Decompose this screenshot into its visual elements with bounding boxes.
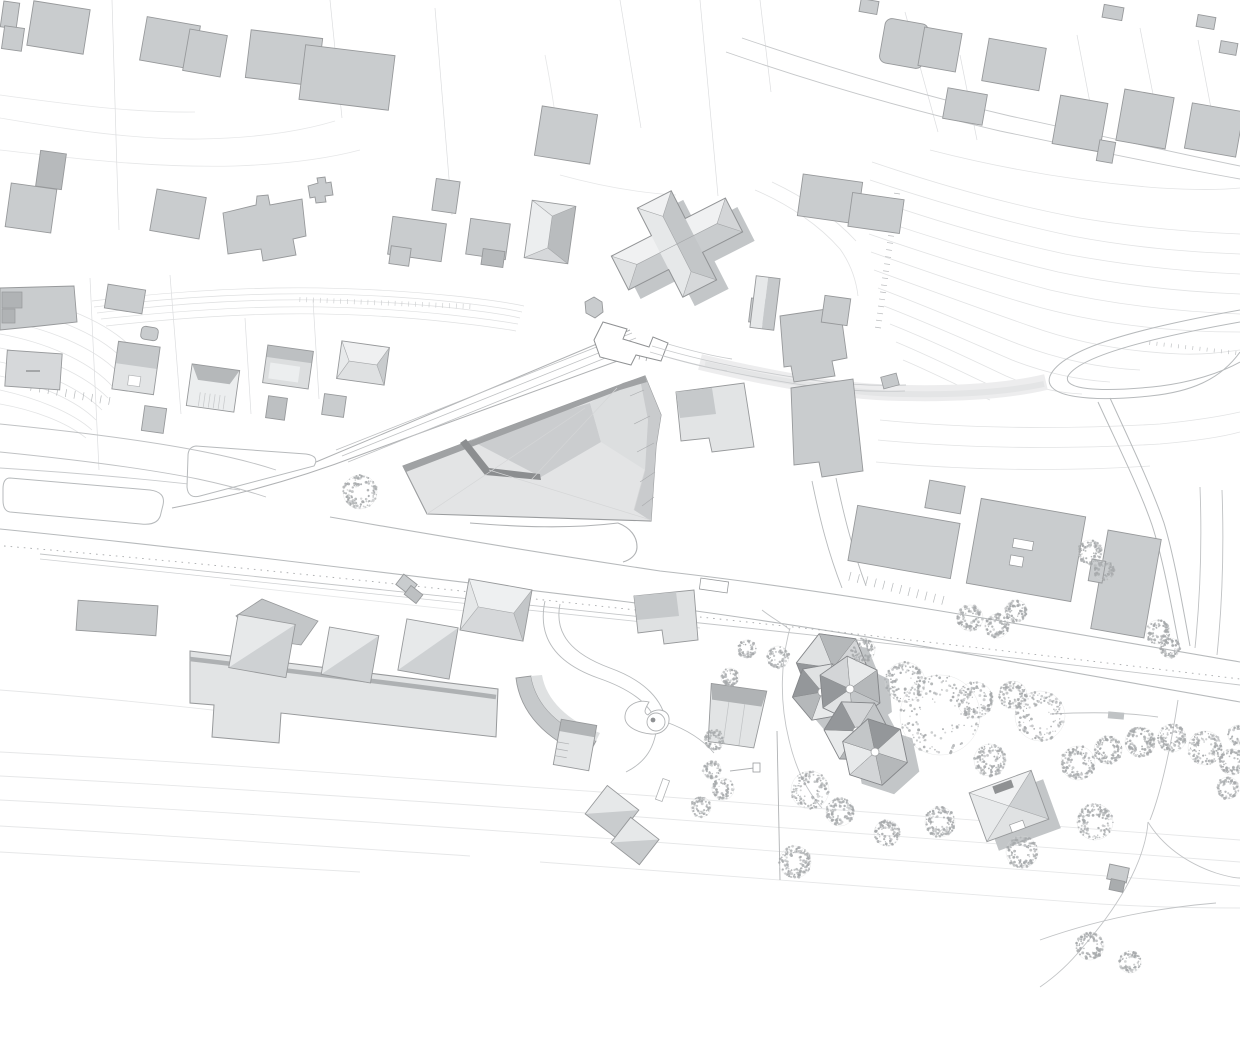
tree-foliage-dot [1150,742,1151,743]
tree-foliage-dot [867,658,868,659]
tree-foliage-dot [1009,610,1011,612]
tree-foliage-dot [804,806,805,807]
tree-foliage-dot [821,774,823,776]
tree-foliage-dot [724,783,726,785]
tree-foliage-dot [848,807,851,810]
tree-foliage-dot [874,836,876,838]
tree-foliage-dot [372,481,374,483]
tree-foliage-dot [1079,554,1081,556]
20 [886,250,892,251]
tree-foliage-dot [1052,713,1054,715]
tree-foliage-dot [358,506,360,508]
tree-foliage-dot [1146,752,1149,755]
tree-foliage-dot [1107,822,1109,824]
tree-foliage-dot [721,674,723,676]
tree-foliage-dot [847,804,850,807]
tree-foliage-dot [1017,614,1019,616]
tree-foliage-dot [1131,742,1134,745]
tree-foliage-dot [1174,651,1176,653]
tree-foliage-dot [1100,547,1102,549]
tree-foliage-dot [932,815,933,816]
tree-foliage-dot [1127,953,1130,956]
tree-foliage-dot [832,810,834,812]
tree [956,681,993,718]
tree-foliage-dot [705,765,708,768]
tree-foliage-dot [955,687,957,689]
tree-foliage-dot [974,629,976,631]
tree-foliage-dot [1034,737,1036,739]
tree-foliage-dot [1091,762,1092,763]
tree-foliage-dot [785,848,788,851]
building-footprint [966,498,1085,601]
tree-foliage-dot [929,814,930,815]
tree-foliage-dot [1082,820,1084,822]
tree-foliage-dot [1055,712,1057,714]
tree-foliage-dot [1093,938,1095,940]
tree-foliage-dot [1009,615,1010,616]
tree-foliage-dot [712,787,713,788]
tree-foliage-dot [1167,743,1168,744]
tree-foliage-dot [1018,725,1019,726]
tree-foliage-dot [709,763,712,766]
tree-foliage-dot [1089,767,1090,768]
tree-foliage-dot [798,777,800,779]
tree-foliage-dot [1105,755,1107,757]
tree-foliage-dot [964,629,965,630]
tree-foliage-dot [708,801,711,804]
tree-foliage-dot [1064,763,1065,764]
tree-foliage-dot [897,688,899,690]
tree-foliage-dot [1214,760,1216,762]
tree-foliage-dot [919,741,921,743]
tree-foliage-dot [958,704,960,706]
tree-foliage-dot [804,774,807,777]
tree-foliage-dot [1235,791,1237,793]
tree-foliage-dot [889,840,892,843]
tree-foliage-dot [1101,948,1104,951]
tree-foliage-dot [1021,866,1023,868]
tree-foliage-dot [894,680,896,682]
tree-foliage-dot [1048,696,1050,698]
tree-foliage-dot [701,802,704,805]
tree-foliage-dot [1130,752,1132,754]
tree-foliage-dot [1143,738,1146,741]
parcel-line [170,275,181,414]
tree-foliage-dot [704,738,707,741]
tree-foliage-dot [723,737,724,738]
10 [74,391,75,399]
tree-foliage-dot [964,687,966,689]
tree-foliage-dot [1171,750,1174,753]
tree-foliage-dot [1091,805,1093,807]
tree-foliage-dot [755,648,757,650]
tree-foliage-dot [993,636,996,639]
tree-foliage-dot [1093,757,1095,759]
tree-foliage-dot [1230,738,1232,740]
tree-foliage-dot [1127,741,1129,743]
tree-foliage-dot [924,682,925,683]
tree-foliage-dot [804,861,807,864]
tree-foliage-dot [731,788,734,791]
tree-foliage-dot [877,832,879,834]
tree-foliage-dot [1052,731,1053,732]
tree-foliage-dot [1044,734,1045,735]
tree-foliage-dot [724,673,726,675]
tree-foliage-dot [883,838,885,840]
tree-foliage-dot [1215,743,1218,746]
tree-foliage-dot [1026,860,1028,862]
tree-foliage-dot [367,505,368,506]
tree-foliage-dot [886,681,887,682]
building-footprint [1102,4,1124,20]
tree-foliage-dot [1119,965,1122,968]
tree-foliage-dot [832,809,833,810]
tree-foliage-dot [1020,706,1022,708]
tree-foliage-dot [928,819,930,821]
tree-foliage-dot [990,703,993,706]
tree-foliage-dot [855,649,856,650]
tree-foliage-dot [1124,952,1127,955]
tree-foliage-dot [1128,951,1129,952]
tree-foliage-dot [971,687,974,690]
tree-foliage-dot [698,797,700,799]
tree-foliage-dot [931,813,932,814]
hipped-house [337,341,390,385]
tree-foliage-dot [784,854,786,856]
tree-foliage-dot [1099,952,1101,954]
tree-foliage-dot [1149,747,1151,749]
tree-foliage-dot [875,827,876,828]
20 [877,313,883,314]
tree-foliage-dot [729,679,731,681]
tree-foliage-dot [911,710,913,712]
tree-foliage-dot [887,826,890,829]
tree-foliage-dot [1005,692,1008,695]
12 [908,587,910,596]
tree-foliage-dot [979,625,981,627]
tree-foliage-dot [1220,743,1221,744]
tree-foliage-dot [953,744,954,745]
tree-foliage-dot [1029,859,1032,862]
tree-foliage-dot [1002,700,1004,702]
building-footprint [848,193,904,234]
tree-foliage-dot [900,698,901,699]
tree-foliage-dot [802,799,804,801]
ramp [655,778,669,801]
tree-foliage-dot [1194,733,1197,736]
tree-foliage-dot [1092,808,1093,809]
tree-foliage-dot [791,796,793,798]
tree-foliage-dot [912,665,914,667]
tree-foliage-dot [809,855,811,857]
tree-foliage-dot [1080,941,1082,943]
tree-foliage-dot [716,772,717,773]
tree-foliage-dot [692,810,694,812]
tree-foliage-dot [999,747,1002,750]
tree-foliage-dot [970,628,972,630]
tree-foliage-dot [998,771,1001,774]
tree-foliage-dot [1068,775,1071,778]
tree-foliage-dot [783,664,785,666]
tree-foliage-dot [701,800,702,801]
tree-foliage-dot [891,668,894,671]
tree-foliage-dot [1072,748,1074,750]
tree-foliage-dot [360,475,362,477]
tree-foliage-dot [1085,752,1088,755]
tree-foliage-dot [1112,738,1115,741]
tree-foliage-dot [920,676,923,679]
tree-foliage-dot [1228,767,1230,769]
tree-foliage-dot [970,621,973,624]
tree-foliage-dot [891,686,892,687]
tree-foliage-dot [1205,754,1207,756]
building-footprint [918,27,962,72]
tree-foliage-dot [925,692,928,695]
tree-foliage-dot [918,677,920,679]
tree-foliage-dot [1109,564,1112,567]
tree-foliage-dot [1067,759,1068,760]
tree-foliage-dot [950,685,952,687]
tree [766,646,790,669]
tree-foliage-dot [1008,707,1010,709]
tree-foliage-dot [913,743,915,745]
tree-foliage-dot [827,791,830,794]
tree-foliage-dot [803,782,806,785]
tree-foliage-dot [1223,769,1225,771]
tree-foliage-dot [1015,619,1017,621]
tree-foliage-dot [1018,862,1020,864]
tree-foliage-dot [925,823,927,825]
tree-foliage-dot [898,828,900,830]
tree-foliage-dot [1086,952,1089,955]
tree-foliage-dot [812,770,815,773]
tree-foliage-dot [954,705,955,706]
tree-foliage-dot [343,490,345,492]
tree-foliage-dot [805,778,808,781]
tree-foliage-dot [1083,557,1084,558]
tree-foliage-dot [1188,749,1189,750]
tree-foliage-dot [987,632,990,635]
tree-foliage-dot [1059,718,1060,719]
tree-foliage-dot [979,748,980,749]
tree-foliage-dot [1178,737,1181,740]
tree-foliage-dot [1092,836,1094,838]
tree-foliage-dot [1051,704,1053,706]
tree-foliage-dot [849,813,852,816]
tree-foliage-dot [1010,844,1011,845]
tree-foliage-dot [738,651,740,653]
tree-foliage-dot [952,821,954,823]
tree-foliage-dot [1078,826,1080,828]
tree-foliage-dot [1083,948,1085,950]
tree-foliage-dot [1195,750,1197,752]
tree-foliage-dot [1084,756,1086,758]
tree-foliage-dot [1162,738,1164,740]
tree-foliage-dot [1098,808,1100,810]
tree [973,744,1006,778]
tree-foliage-dot [1026,731,1029,734]
tree-foliage-dot [892,828,894,830]
tree-foliage-dot [880,841,882,843]
tree-foliage-dot [924,734,926,736]
tree-foliage-dot [775,664,777,666]
tree-foliage-dot [916,739,918,741]
tree-foliage-dot [790,849,793,852]
tree-foliage-dot [1016,856,1019,859]
house [263,345,314,389]
tree-foliage-dot [706,814,708,816]
tree-foliage-dot [960,615,961,616]
tree-foliage-dot [1219,790,1221,792]
building-footprint [1196,15,1216,30]
tree-foliage-dot [1179,747,1181,749]
tree-foliage-dot [1221,754,1223,756]
tree [778,845,811,879]
tree-foliage-dot [773,655,775,657]
20 [881,285,887,286]
tree-foliage-dot [1005,689,1007,691]
tree-foliage-dot [1093,552,1095,554]
tree-foliage-dot [782,854,784,856]
tree-foliage-dot [1046,739,1048,741]
tree-foliage-dot [1102,817,1104,819]
tree-foliage-dot [974,610,976,612]
tree-foliage-dot [372,495,374,497]
tree-foliage-dot [990,769,991,770]
tree-foliage-dot [882,827,884,829]
tree-foliage-dot [985,625,987,627]
tree-foliage-dot [1174,741,1176,743]
tree-foliage-dot [1092,539,1094,541]
tree-foliage-dot [1032,859,1034,861]
tree-foliage-dot [818,800,819,801]
tree-foliage-dot [932,829,935,832]
street-right [1217,490,1223,655]
tree-foliage-dot [1182,737,1184,739]
tree-foliage-dot [373,490,374,491]
tree-foliage-dot [938,751,941,754]
tree-foliage-dot [793,876,796,879]
tree-foliage-dot [1237,766,1239,768]
tree-foliage-dot [1115,746,1117,748]
tree-foliage-dot [771,659,773,661]
tree-foliage-dot [1039,733,1042,736]
tree-foliage-dot [907,662,910,665]
tree-foliage-dot [784,660,787,663]
tree-foliage-dot [353,485,355,487]
tree-foliage-dot [718,798,720,800]
tree-foliage-dot [739,648,741,650]
tree-foliage-dot [1152,628,1155,631]
tree-foliage-dot [1219,794,1221,796]
tree-foliage-dot [1079,818,1080,819]
tree-foliage-dot [998,695,1001,698]
tree-foliage-dot [785,657,787,659]
tree-foliage-dot [1107,810,1110,813]
tree-foliage-dot [1082,545,1084,547]
tree-foliage-dot [1094,953,1097,956]
tree-foliage-dot [1011,842,1013,844]
tree-foliage-dot [1205,731,1206,732]
tree-foliage-dot [1133,745,1136,748]
tree-foliage-dot [1224,791,1226,793]
tree-foliage-dot [1224,760,1225,761]
tree-foliage-dot [1080,830,1082,832]
tree-foliage-dot [1102,812,1104,814]
tree-foliage-dot [1010,846,1012,848]
tree-foliage-dot [778,861,780,863]
tree-foliage-dot [963,700,964,701]
park-path [1040,948,1082,987]
tree-foliage-dot [697,809,699,811]
tree-foliage-dot [1016,866,1018,868]
tree-foliage-dot [982,758,984,760]
tree-foliage-dot [1109,827,1111,829]
tree [1227,725,1240,746]
tree-foliage-dot [1078,815,1081,818]
tree-foliage-dot [1099,739,1101,741]
tree-foliage-dot [355,479,356,480]
tree-foliage-dot [720,782,722,784]
tree-foliage-dot [950,831,952,833]
tree-foliage-dot [1081,828,1082,829]
tree-foliage-dot [968,611,970,613]
tree-foliage-dot [743,644,744,645]
tree-foliage-dot [785,851,787,853]
tree-foliage-dot [1155,635,1157,637]
tree-foliage-dot [1003,763,1005,765]
tree-foliage-dot [1144,752,1146,754]
tree-foliage-dot [349,503,351,505]
tree-foliage-dot [708,772,711,775]
tree-foliage-dot [942,807,944,809]
tree-foliage-dot [1108,567,1110,569]
tree-foliage-dot [908,722,910,724]
tree-foliage-dot [1013,850,1016,853]
tree-foliage-dot [1058,708,1060,710]
tree-foliage-dot [935,675,937,677]
tree-foliage-dot [1025,703,1027,705]
tree-foliage-dot [705,742,707,744]
tree-foliage-dot [1115,759,1118,762]
tree-foliage-dot [1104,811,1107,814]
tree-foliage-dot [1147,625,1149,627]
tree-foliage-dot [952,696,955,699]
tree-foliage-dot [834,798,837,801]
tree-foliage-dot [358,478,360,480]
tree-foliage-dot [713,787,715,789]
tree-foliage-dot [973,621,975,623]
tree-foliage-dot [793,869,795,871]
tree-foliage-dot [716,746,718,748]
tree-foliage-dot [813,780,816,783]
tree-foliage-dot [965,712,967,714]
tree-foliage-dot [1111,754,1112,755]
tree-foliage-dot [978,755,981,758]
building-footprint [183,29,228,77]
tree-foliage-dot [998,614,1001,617]
tree-foliage-dot [1088,935,1089,936]
tree-foliage-dot [1235,795,1236,796]
tree-foliage-dot [918,748,921,751]
street-right [1195,487,1201,648]
tree-foliage-dot [1089,935,1092,938]
tree-foliage-dot [1178,748,1179,749]
tree-foliage-dot [1072,752,1073,753]
tree-foliage-dot [804,803,806,805]
tree-foliage-dot [1178,741,1180,743]
20 [884,264,890,265]
